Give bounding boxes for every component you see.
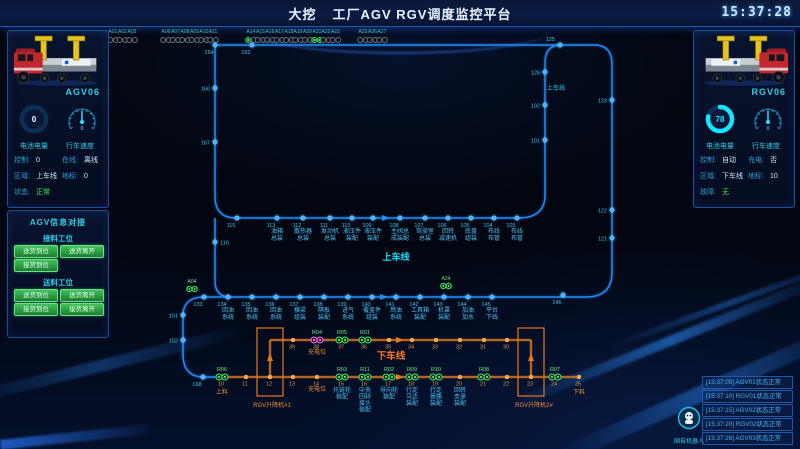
map-text: 充电位 bbox=[308, 385, 326, 393]
map-node-126 bbox=[543, 70, 547, 74]
station-label: 主阀总成装配 bbox=[391, 227, 409, 242]
map-text: 133 bbox=[193, 302, 202, 308]
map-text: RGV升降机#1 bbox=[253, 401, 291, 409]
r-markers: R04R05R01R06R03R11R02R09R10R08R07A04A24 bbox=[187, 276, 561, 380]
map-node-107 bbox=[423, 216, 427, 220]
map-text: 30 bbox=[503, 345, 509, 351]
map-text: 12 bbox=[266, 382, 272, 388]
map-text: 32 bbox=[456, 345, 462, 351]
blue-routes bbox=[183, 45, 612, 377]
map-text: 33 bbox=[432, 345, 438, 351]
station-label: 油箱总装 bbox=[271, 227, 283, 242]
map-node-110 bbox=[350, 216, 354, 220]
map-text: 下料 bbox=[573, 388, 585, 396]
station-indicator bbox=[208, 38, 213, 43]
map-text: 123 bbox=[598, 99, 607, 105]
info-row: 故障:无 bbox=[700, 187, 792, 197]
info-value: 否 bbox=[770, 155, 790, 165]
map-node-168 bbox=[201, 375, 205, 379]
info-row: 控制:自动充电:否 bbox=[700, 155, 792, 165]
map-text: RGV升降机2# bbox=[515, 401, 553, 409]
map-text: 24 bbox=[551, 382, 557, 388]
map-text: 0 bbox=[81, 126, 84, 132]
map-node-34 bbox=[410, 338, 414, 342]
map-node-101 bbox=[543, 138, 547, 142]
station-label: 机罩装配 bbox=[438, 306, 450, 321]
map-text: 162 bbox=[241, 50, 250, 56]
station-indicator bbox=[170, 38, 175, 43]
map-text: 35 bbox=[385, 345, 391, 351]
map-text: 116 bbox=[220, 241, 229, 247]
map-text: 23 bbox=[527, 382, 533, 388]
btn-deliver-leave-1[interactable]: 送货离开 bbox=[60, 245, 104, 258]
flow-arrow bbox=[396, 374, 404, 380]
map-node-35 bbox=[387, 338, 391, 342]
map-text: 10 bbox=[218, 382, 224, 388]
map-text: R07 bbox=[550, 367, 560, 373]
station-label: 工具箱装配 bbox=[411, 306, 429, 321]
clock-display: 15:37:28 bbox=[721, 5, 792, 20]
station-label: 液压件装配 bbox=[343, 227, 361, 242]
log-entry: [15:37:20] RGV02状态正常 bbox=[702, 418, 793, 431]
title-label: 工厂AGV RGV调度监控平台 bbox=[333, 7, 512, 22]
info-value: 自动 bbox=[722, 155, 748, 165]
map-node-138 bbox=[322, 295, 326, 299]
map-text: 上料 bbox=[216, 388, 228, 396]
station-label: 回油系统 bbox=[222, 306, 234, 321]
factory-map: RGV升降机#1RGV升降机2#A01A02A03A06A07A08A09A10… bbox=[0, 0, 800, 449]
agv-monitor-screen: 大挖工厂AGV RGV调度监控平台 15:37:28 RGV升降机#1RGV升降… bbox=[0, 0, 800, 449]
map-text: R05 bbox=[337, 330, 347, 336]
map-node-135 bbox=[250, 295, 254, 299]
robot-logo-icon bbox=[677, 406, 701, 430]
station-label: 平台下线 bbox=[486, 306, 498, 321]
log-entry: [15:37:26] AGV03状态正常 bbox=[702, 432, 793, 445]
page-title: 大挖工厂AGV RGV调度监控平台 bbox=[0, 4, 800, 23]
info-row: 状态:正常 bbox=[14, 187, 106, 197]
map-text: 上车线 bbox=[382, 251, 409, 262]
info-key: 区域: bbox=[14, 171, 36, 181]
battery-gauge-label: 电池电量 bbox=[706, 141, 734, 151]
map-text: 21 bbox=[480, 382, 486, 388]
map-text: R01 bbox=[360, 330, 370, 336]
map-node-125 bbox=[558, 43, 562, 47]
map-text: 0 bbox=[767, 126, 770, 132]
map-text: 16 bbox=[361, 382, 367, 388]
map-node-116 bbox=[213, 240, 217, 244]
map-text: 下车线 bbox=[377, 350, 406, 362]
map-text: A10 bbox=[200, 29, 209, 35]
station-label: 覆盖件组装 bbox=[363, 306, 381, 321]
map-node-102 bbox=[543, 103, 547, 107]
map-text: R11 bbox=[360, 367, 370, 373]
map-node-143 bbox=[442, 295, 446, 299]
map-node-121 bbox=[610, 236, 614, 240]
map-node-112 bbox=[301, 216, 305, 220]
station-label: 发动机总装 bbox=[321, 227, 339, 242]
map-text: 164 bbox=[204, 50, 213, 56]
map-node-22 bbox=[505, 375, 509, 379]
map-text: A06 bbox=[162, 29, 171, 35]
info-key: 状态: bbox=[14, 187, 36, 197]
map-node-108 bbox=[398, 216, 402, 220]
map-text: 152 bbox=[169, 339, 178, 345]
station-label: 回油系统 bbox=[246, 306, 258, 321]
map-node-115 bbox=[235, 216, 239, 220]
section-label-receive: 接料工位 bbox=[8, 233, 108, 244]
map-node-30 bbox=[505, 338, 509, 342]
map-node-123 bbox=[610, 98, 614, 102]
battery-gauge-label: 电池电量 bbox=[20, 141, 48, 151]
map-text: A07 bbox=[171, 29, 180, 35]
map-node-39 bbox=[291, 338, 295, 342]
left-vehicle-panel: AGV06 0 0 电池电量 行车速度 控制:0在线:离线 区域:上车线地标:0… bbox=[7, 30, 109, 208]
battery-gauge: 78 bbox=[702, 101, 738, 139]
map-node-23 bbox=[529, 375, 533, 379]
map-text: 115 bbox=[227, 223, 236, 229]
agv-vehicle-id: AGV06 bbox=[65, 87, 100, 97]
map-text: 15 bbox=[338, 382, 344, 388]
station-label: 中央回转接头装配 bbox=[359, 386, 371, 414]
map-text: 121 bbox=[598, 237, 607, 243]
map-text: A08 bbox=[181, 29, 190, 35]
battery-gauge: 0 bbox=[16, 101, 52, 139]
map-node-144 bbox=[466, 295, 470, 299]
station-label: 驾驶室总装 bbox=[416, 227, 434, 242]
map-text: 37 bbox=[338, 345, 344, 351]
map-text: 19 bbox=[432, 382, 438, 388]
map-text: R04 bbox=[312, 330, 322, 336]
info-row: 区域:上车线地标:0 bbox=[14, 171, 106, 181]
map-text: R02 bbox=[384, 367, 394, 373]
dock-panel-title: AGV信息对接 bbox=[8, 217, 108, 228]
station-label: 行走管路装配 bbox=[430, 386, 442, 407]
agv-dock-panel: AGV信息对接 接料工位 送货到位 送货离开 接货到位 送料工位 送货到位 送货… bbox=[7, 210, 109, 338]
info-value: 10 bbox=[770, 173, 790, 180]
rgv-vehicle-image bbox=[698, 35, 790, 87]
agv-vehicle-image bbox=[12, 35, 104, 87]
map-node-111 bbox=[328, 216, 332, 220]
station-label: 燃油系统 bbox=[390, 306, 402, 321]
info-key: 控制: bbox=[14, 155, 36, 165]
map-node-32 bbox=[458, 338, 462, 342]
map-text: 20 bbox=[456, 382, 462, 388]
rgv-vehicle-id: RGV06 bbox=[751, 87, 786, 97]
station-label: 布线布管 bbox=[511, 227, 523, 242]
map-text: 125 bbox=[546, 37, 555, 43]
map-node-109 bbox=[371, 216, 375, 220]
map-node-164 bbox=[213, 43, 217, 47]
station-label: 回转支承装配 bbox=[454, 386, 466, 407]
map-node-139 bbox=[346, 295, 350, 299]
map-node-134 bbox=[226, 295, 230, 299]
speed-gauge-label: 行车速度 bbox=[752, 141, 780, 151]
info-key: 在线: bbox=[62, 155, 84, 165]
map-node-146 bbox=[561, 293, 565, 297]
map-text: 160 bbox=[201, 87, 210, 93]
brand-label: 大挖 bbox=[289, 7, 317, 22]
map-node-160 bbox=[213, 86, 217, 90]
map-text: 31 bbox=[480, 345, 486, 351]
station-label: 加油加水 bbox=[462, 306, 474, 321]
map-text: R06 bbox=[217, 367, 227, 373]
status-value: 正常 bbox=[36, 187, 62, 197]
map-text: 充电位 bbox=[308, 348, 326, 356]
map-node-145 bbox=[490, 295, 494, 299]
map-text: R03 bbox=[337, 367, 347, 373]
info-key: 充电: bbox=[748, 155, 770, 165]
map-text: 22 bbox=[503, 382, 509, 388]
btn-deliver-leave-2[interactable]: 送货离开 bbox=[60, 289, 104, 302]
logo-text: 国自机器人 bbox=[672, 436, 706, 445]
station-indicator bbox=[132, 38, 137, 43]
map-text: 0 bbox=[32, 115, 37, 124]
station-label: 隔板装配 bbox=[318, 306, 330, 321]
info-value: 0 bbox=[36, 157, 62, 164]
station-label: 散热器总装 bbox=[294, 227, 312, 242]
station-indicator bbox=[189, 38, 194, 43]
speed-gauge: 0 bbox=[748, 103, 788, 139]
info-key: 地标: bbox=[748, 171, 770, 181]
map-text: 18 bbox=[408, 382, 414, 388]
station-label: 导向轮装配 bbox=[380, 386, 398, 401]
section-label-send: 送料工位 bbox=[8, 277, 108, 288]
map-text: 151 bbox=[169, 314, 178, 320]
map-node-151 bbox=[181, 313, 185, 317]
map-node-104 bbox=[492, 216, 496, 220]
speed-gauge: 0 bbox=[62, 103, 102, 139]
map-node-162 bbox=[250, 43, 254, 47]
map-node-141 bbox=[394, 295, 398, 299]
station-label: 进气系统 bbox=[342, 306, 354, 321]
map-text: A01 bbox=[109, 29, 118, 35]
map-text: R08 bbox=[479, 367, 489, 373]
info-key: 故障: bbox=[700, 187, 722, 197]
map-node-122 bbox=[610, 208, 614, 212]
map-node-33 bbox=[434, 338, 438, 342]
map-node-31 bbox=[482, 338, 486, 342]
map-text: 25 bbox=[575, 382, 581, 388]
station-label: 托链轮装配 bbox=[333, 386, 351, 401]
station-label: 回转减速机 bbox=[439, 227, 457, 242]
log-entry: [15:37:05] AGV01状态正常 bbox=[702, 376, 793, 389]
map-text: 101 bbox=[531, 139, 540, 145]
map-node-105 bbox=[469, 216, 473, 220]
map-node-152 bbox=[181, 338, 185, 342]
flow-arrow bbox=[267, 353, 273, 361]
map-text: 36 bbox=[361, 345, 367, 351]
map-text: A02 bbox=[118, 29, 127, 35]
map-text: A24 bbox=[442, 276, 451, 282]
map-node-25 bbox=[577, 375, 581, 379]
status-value: 无 bbox=[722, 187, 748, 197]
map-text: A11 bbox=[209, 29, 218, 35]
map-node-103 bbox=[515, 216, 519, 220]
info-value: 离线 bbox=[84, 155, 104, 165]
map-text: 34 bbox=[408, 345, 414, 351]
map-text: 167 bbox=[201, 141, 210, 147]
station-label: 回油系统 bbox=[270, 306, 282, 321]
map-node-12 bbox=[268, 375, 272, 379]
station-label: 布线布管 bbox=[488, 227, 500, 242]
map-text: 126 bbox=[531, 71, 540, 77]
station-label: 横梁组装 bbox=[294, 306, 306, 321]
map-text: 11 bbox=[242, 382, 248, 388]
map-text: 13 bbox=[289, 382, 295, 388]
map-text: A03 bbox=[128, 29, 137, 35]
info-row: 区域:下车线地标:10 bbox=[700, 171, 792, 181]
info-key: 控制: bbox=[700, 155, 722, 165]
flow-arrow bbox=[528, 353, 534, 361]
map-node-142 bbox=[418, 295, 422, 299]
company-logo: 国自机器人 bbox=[672, 406, 706, 445]
map-node-106 bbox=[446, 216, 450, 220]
info-row: 控制:0在线:离线 bbox=[14, 155, 106, 165]
station-indicator bbox=[161, 38, 166, 43]
orange-nodes: 3938373635343332313010111213141516171819… bbox=[218, 338, 581, 388]
map-text: A04 bbox=[188, 279, 197, 285]
map-node-136 bbox=[274, 295, 278, 299]
station-label: 底盘组装 bbox=[465, 227, 477, 242]
map-text: R09 bbox=[407, 367, 417, 373]
map-text: 168 bbox=[192, 382, 201, 388]
info-value: 0 bbox=[84, 173, 104, 180]
map-text: 146 bbox=[552, 300, 561, 306]
map-text: 上车线 bbox=[547, 84, 565, 92]
map-node-14 bbox=[315, 375, 319, 379]
station-indicator bbox=[199, 38, 204, 43]
map-text: 78 bbox=[716, 115, 725, 124]
speed-gauge-label: 行车速度 bbox=[66, 141, 94, 151]
map-text: 17 bbox=[385, 382, 391, 388]
header-bar: 大挖工厂AGV RGV调度监控平台 15:37:28 bbox=[0, 0, 800, 27]
btn-pickup-arrive-1[interactable]: 接货到位 bbox=[14, 259, 58, 272]
station-label: 行走马达装配 bbox=[406, 386, 418, 407]
map-node-137 bbox=[298, 295, 302, 299]
map-text: 39 bbox=[289, 345, 295, 351]
map-node-167 bbox=[213, 140, 217, 144]
info-key: 地标: bbox=[62, 171, 84, 181]
map-text: 102 bbox=[531, 104, 540, 110]
station-indicator bbox=[180, 38, 185, 43]
log-entry: [15:37:15] AGV02状态正常 bbox=[702, 404, 793, 417]
info-key: 区域: bbox=[700, 171, 722, 181]
station-label: 液压件装配 bbox=[364, 227, 382, 242]
map-node-13 bbox=[291, 375, 295, 379]
btn-pickup-leave-2[interactable]: 接货离开 bbox=[60, 303, 104, 316]
flow-arrow bbox=[396, 337, 404, 343]
map-node-11 bbox=[244, 375, 248, 379]
log-entry: [15:37:10] RGV01状态正常 bbox=[702, 390, 793, 403]
map-node-20 bbox=[458, 375, 462, 379]
btn-pickup-arrive-2[interactable]: 接货到位 bbox=[14, 303, 58, 316]
btn-deliver-arrive-1[interactable]: 送货到位 bbox=[14, 245, 58, 258]
map-node-113 bbox=[275, 216, 279, 220]
right-vehicle-panel: RGV06 78 0 电池电量 行车速度 控制:自动充电:否 区域:下车线地标:… bbox=[693, 30, 795, 208]
station-indicator bbox=[127, 38, 132, 43]
map-text: 122 bbox=[598, 209, 607, 215]
station-indicator bbox=[117, 38, 122, 43]
map-text: A09 bbox=[190, 29, 199, 35]
map-node-133 bbox=[202, 295, 206, 299]
map-node-140 bbox=[370, 295, 374, 299]
map-text: R10 bbox=[431, 367, 441, 373]
btn-deliver-arrive-2[interactable]: 送货到位 bbox=[14, 289, 58, 302]
info-value: 下车线 bbox=[722, 171, 748, 181]
info-value: 上车线 bbox=[36, 171, 62, 181]
